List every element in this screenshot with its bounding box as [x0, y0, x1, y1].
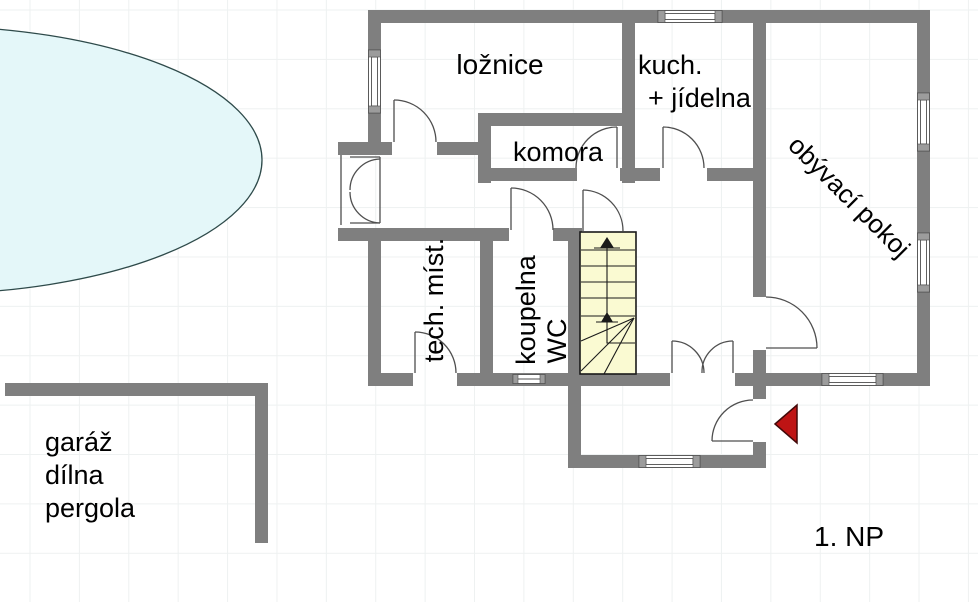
entrance-arrow-icon [775, 405, 797, 443]
staircase [580, 232, 636, 374]
pool-ellipse [0, 26, 262, 294]
wall-segment [478, 113, 635, 126]
room-label-kitchen-line2: + jídelna [648, 83, 752, 113]
outbuilding-label-line2: dílna [45, 460, 105, 490]
wall-segment [368, 373, 413, 386]
door-entry [712, 400, 753, 441]
wall-segment [457, 373, 670, 386]
room-label-pantry: komora [513, 137, 604, 167]
door-living-room [766, 297, 817, 348]
wall-segment [437, 142, 491, 155]
room-label-kitchen-line1: kuch. [638, 50, 703, 80]
window-living-east-upper [918, 93, 930, 151]
door-french-west-double [341, 155, 380, 225]
room-label-bedroom: ložnice [456, 49, 543, 80]
wall-segment [368, 241, 381, 373]
window-living-east-lower [918, 233, 930, 292]
wall-segment [707, 168, 766, 181]
window-living-south [822, 374, 883, 386]
door-stairs [583, 190, 623, 231]
wall-segment [620, 168, 660, 181]
wall-segment [368, 10, 930, 23]
outbuilding-label-line1: garáž [45, 427, 113, 457]
floor-label: 1. NP [814, 521, 884, 552]
room-label-living-room: obývací pokoj [783, 130, 917, 264]
wall-segment-garage [5, 383, 268, 396]
room-label-bathroom-line2: WC [542, 319, 572, 364]
wall-segment [338, 142, 392, 155]
wall-segment [753, 23, 766, 297]
outbuilding-label-line3: pergola [45, 493, 136, 523]
window-vestibule-south [639, 456, 700, 468]
door-bedroom [394, 100, 436, 142]
window-kitchen-north [658, 11, 722, 23]
wall-segment [480, 241, 493, 373]
wall-segment [622, 23, 635, 183]
wall-segment [478, 168, 577, 181]
door-kitchen [663, 127, 704, 168]
room-label-bathroom-line1: koupelna [511, 254, 541, 365]
door-bathroom [511, 188, 553, 230]
wall-segment-garage [255, 383, 268, 543]
floor-plan-canvas: ložnice kuch. + jídelna komora obývací p… [0, 0, 978, 602]
floor-plan: ložnice kuch. + jídelna komora obývací p… [0, 0, 978, 602]
door-hall-double [672, 341, 733, 373]
window-bedroom-west [369, 50, 381, 113]
window-bathroom-south [513, 375, 545, 384]
wall-segment [917, 10, 930, 386]
room-label-utility: tech. míst. [419, 238, 449, 363]
